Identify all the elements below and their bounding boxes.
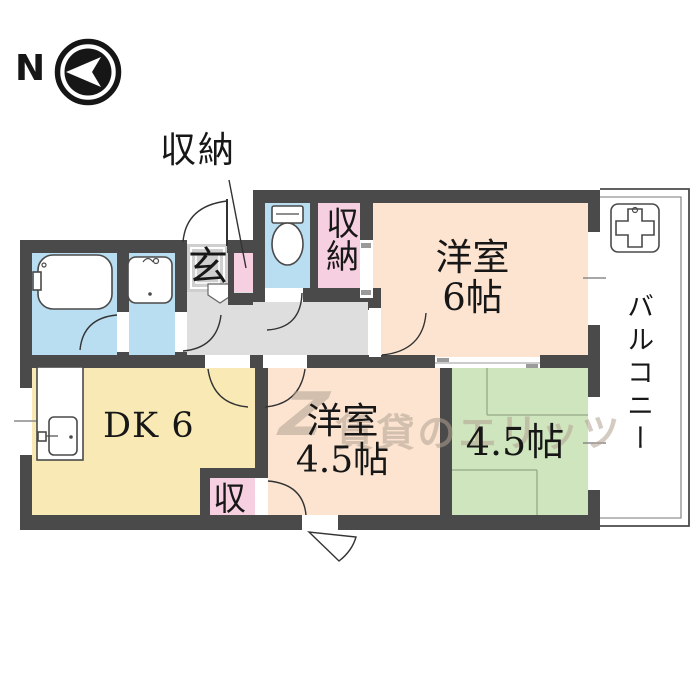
washing-machine-pan-icon: [611, 204, 659, 252]
room6-label: 洋室 6帖: [385, 238, 560, 318]
closet-callout-label: 収納: [160, 132, 236, 171]
upper-closet-label: 収納: [322, 206, 358, 272]
bathtub-icon: [33, 255, 112, 309]
compass-n-label: N: [15, 48, 45, 89]
room45-label: 洋室 4.5帖: [255, 403, 430, 481]
kitchen-sink-icon: [37, 367, 83, 460]
entrance-door-arc: [183, 201, 227, 242]
sliding-door-closet: [360, 240, 373, 298]
floor-plan: [0, 0, 700, 700]
floor-plan-page: Z 賃貸のエリッツ N 収納 玄 収納 洋室 6帖 バルコニー DK 6 洋室 …: [0, 0, 700, 700]
balcony-label: バルコニー: [623, 292, 652, 457]
lower-closet-label: 収: [213, 481, 246, 517]
entrance-label: 玄: [188, 246, 228, 289]
tatami45-label: 4.5帖: [430, 422, 600, 463]
exterior-door-fan: [309, 532, 356, 561]
toilet-icon: [272, 206, 303, 265]
compass-icon: [58, 42, 119, 103]
washbasin-icon: [128, 257, 172, 303]
sliding-door-partition: [435, 357, 540, 368]
dk-label: DK 6: [103, 408, 195, 446]
